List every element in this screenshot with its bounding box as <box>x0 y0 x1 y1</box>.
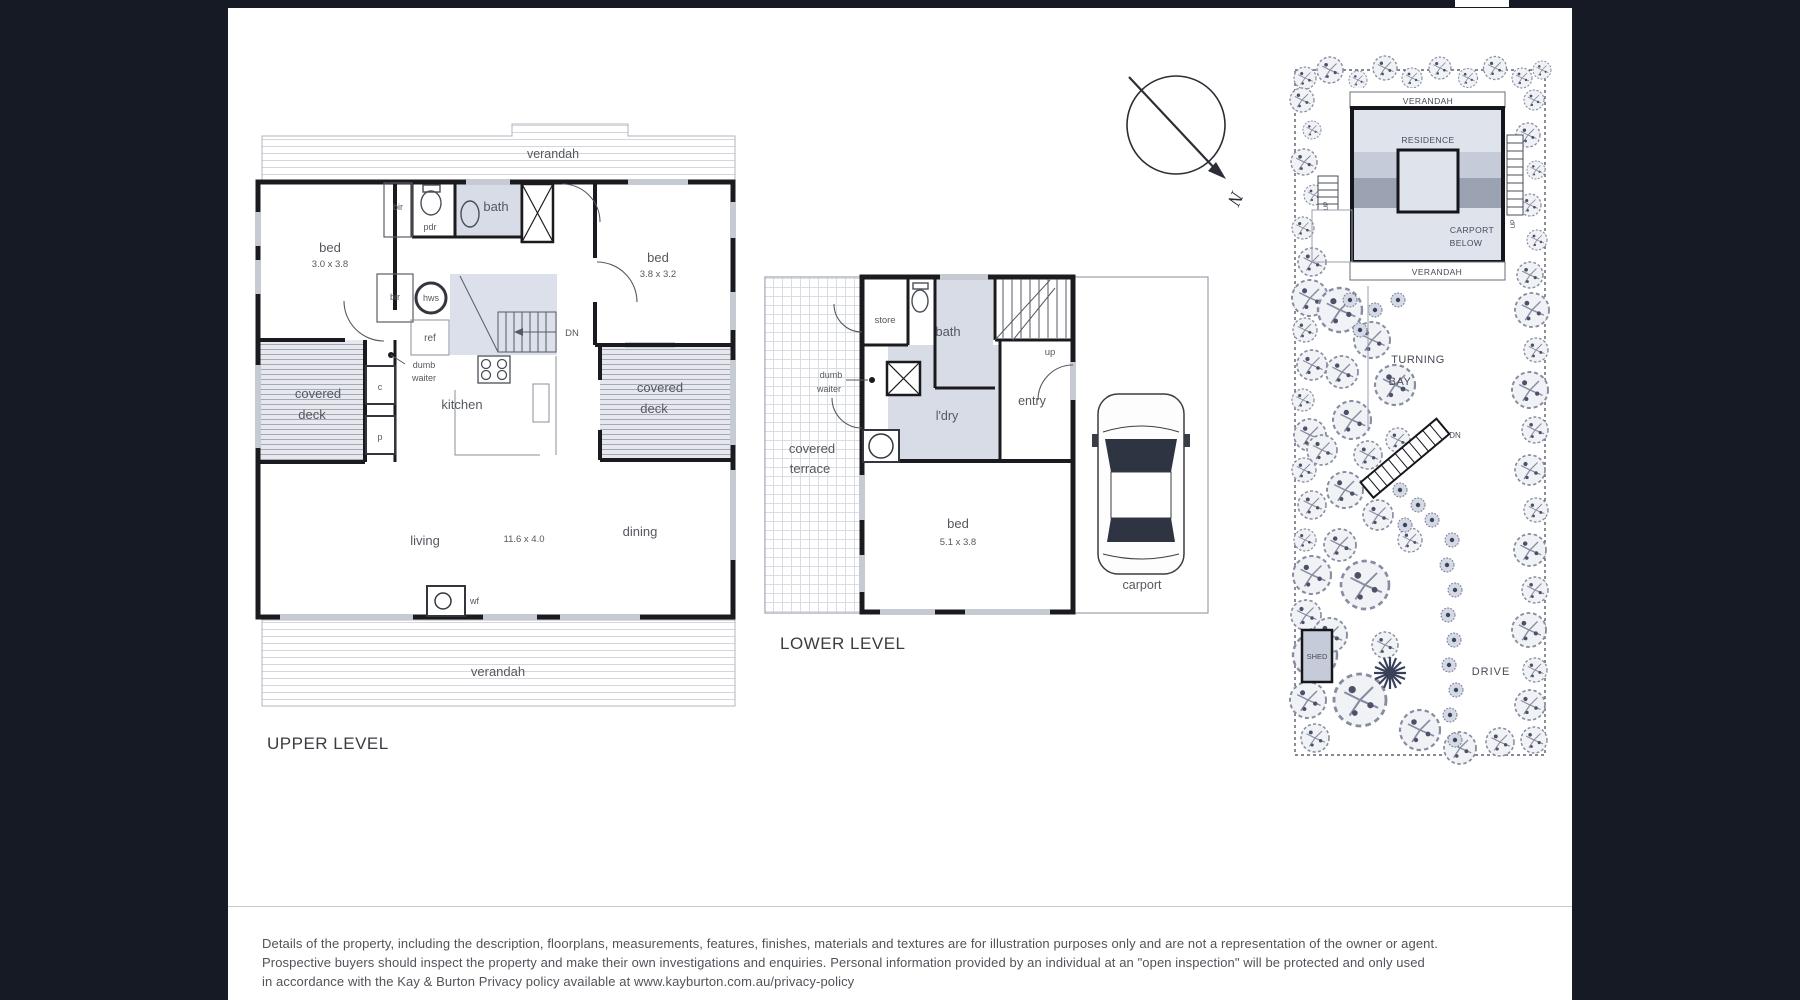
c-label: c <box>378 382 383 392</box>
lower-bed-dims: 5.1 x 3.8 <box>940 537 976 548</box>
lower-dumb-label: dumb <box>820 370 843 380</box>
shower-icon-lower <box>887 362 920 395</box>
site-verandah-bottom-label: VERANDAH <box>1412 267 1462 277</box>
stove-icon <box>478 356 510 383</box>
dumb-label: dumb <box>413 360 436 370</box>
upper-verandah-bottom-label: verandah <box>471 664 525 679</box>
kitchen-label: kitchen <box>441 397 482 412</box>
site-up-right-label: UP <box>1510 219 1517 228</box>
upper-stair-landing-fill <box>450 274 557 355</box>
car-icon <box>1092 394 1190 574</box>
living-dims: 11.6 x 4.0 <box>503 534 544 545</box>
bed1-dims: 3.0 x 3.8 <box>312 259 348 270</box>
lower-waiter-label: waiter <box>816 384 841 394</box>
disclaimer-line-1: Details of the property, including the d… <box>262 934 1438 953</box>
dining-label: dining <box>623 524 658 539</box>
site-dn-label: DN <box>1449 431 1461 440</box>
drive-label: DRIVE <box>1472 666 1511 678</box>
bed2-dims: 3.8 x 3.2 <box>640 269 676 280</box>
hws-label: hws <box>423 293 440 303</box>
compass-icon <box>1127 76 1226 179</box>
dn-label: DN <box>565 328 579 339</box>
waiter-label: waiter <box>411 373 436 383</box>
site-residence: VERANDAH RESIDENCE CARPORT BELOW VERANDA… <box>1312 88 1523 284</box>
toilet-icon-lower <box>912 283 928 312</box>
deck-left-label2: deck <box>298 407 326 422</box>
lower-bath-label: bath <box>935 324 960 339</box>
bed2-door-arc <box>597 262 637 302</box>
site-verandah-top-label: VERANDAH <box>1403 96 1453 106</box>
carport-label: carport <box>1123 578 1162 592</box>
terrace-label2: terrace <box>790 461 830 476</box>
compass-north-label: N <box>1222 187 1247 209</box>
turning-bay-label1: TURNING <box>1391 354 1445 366</box>
bir1-label: bir <box>393 202 403 212</box>
pdr-label: pdr <box>423 222 436 232</box>
deck-right-label2: deck <box>640 401 668 416</box>
site-up-left-label: UP <box>1323 201 1330 210</box>
up-label: up <box>1045 347 1056 358</box>
deck-left-label1: covered <box>295 386 341 401</box>
site-stairs-right <box>1507 135 1523 215</box>
terrace-label1: covered <box>789 441 835 456</box>
bed1-label: bed <box>319 240 341 255</box>
disclaimer: Details of the property, including the d… <box>262 934 1438 991</box>
site-plan: VERANDAH RESIDENCE CARPORT BELOW VERANDA… <box>1278 45 1578 775</box>
upper-verandah-top: verandah <box>262 124 735 182</box>
ref-label: ref <box>424 333 436 344</box>
compass: N <box>1100 55 1270 225</box>
bath-label: bath <box>483 199 508 214</box>
site-residence-label: RESIDENCE <box>1401 135 1454 145</box>
entry-label: entry <box>1018 394 1047 408</box>
toilet-icon <box>421 185 441 215</box>
bed2-label: bed <box>647 250 669 265</box>
store-label: store <box>874 315 895 326</box>
wood-fire-icon <box>427 586 465 616</box>
disclaimer-line-2: Prospective buyers should inspect the pr… <box>262 953 1438 972</box>
upper-level-plan: verandah verandah <box>240 100 760 770</box>
upper-verandah-top-label: verandah <box>527 147 579 161</box>
bir2-label: bir <box>390 292 400 302</box>
upper-verandah-bottom: verandah <box>262 620 735 706</box>
ldry-label: l'dry <box>936 409 959 423</box>
disclaimer-line-3: in accordance with the Kay & Burton Priv… <box>262 972 1438 991</box>
bed1-door-arc <box>344 301 384 341</box>
lower-level-title: LOWER LEVEL <box>780 634 906 653</box>
lower-stairs-up <box>995 279 1066 340</box>
upper-level-title: UPPER LEVEL <box>267 734 389 753</box>
shed: SHED <box>1302 630 1332 682</box>
shed-label: SHED <box>1307 652 1328 661</box>
hws-unit: hws <box>416 283 446 313</box>
shower-icon <box>522 184 553 242</box>
upper-deck-left-fill <box>258 340 365 462</box>
living-label: living <box>410 533 440 548</box>
turning-bay-label2: BAY <box>1389 376 1412 388</box>
site-carport-below-label2: BELOW <box>1450 238 1483 248</box>
deck-right-label1: covered <box>637 380 683 395</box>
wf-label: wf <box>469 596 479 606</box>
p-label: p <box>377 432 382 442</box>
lower-bed-label: bed <box>947 516 969 531</box>
top-right-mark <box>1455 0 1509 7</box>
laundry-tub-icon <box>863 430 899 462</box>
lower-level-plan: covered terrace store <box>750 250 1230 680</box>
site-carport-below-label1: CARPORT <box>1450 225 1494 235</box>
page-background: verandah verandah <box>0 0 1800 1000</box>
footer-divider <box>228 906 1572 907</box>
